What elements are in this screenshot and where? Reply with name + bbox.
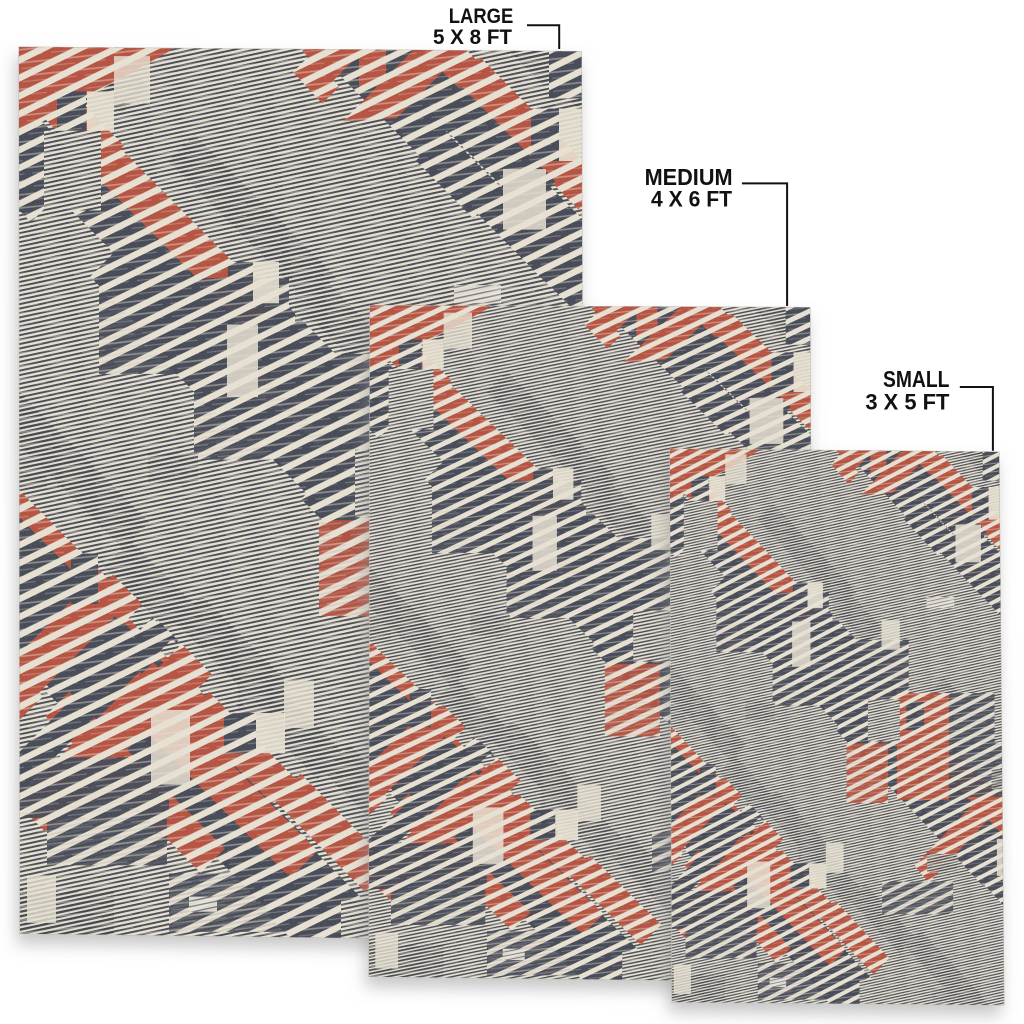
svg-text:4 X 6 FT: 4 X 6 FT: [651, 187, 733, 212]
svg-text:LARGE: LARGE: [449, 5, 514, 28]
svg-text:SMALL: SMALL: [883, 366, 950, 392]
svg-text:3 X 5 FT: 3 X 5 FT: [865, 389, 950, 414]
svg-text:5 X 8 FT: 5 X 8 FT: [433, 26, 512, 49]
